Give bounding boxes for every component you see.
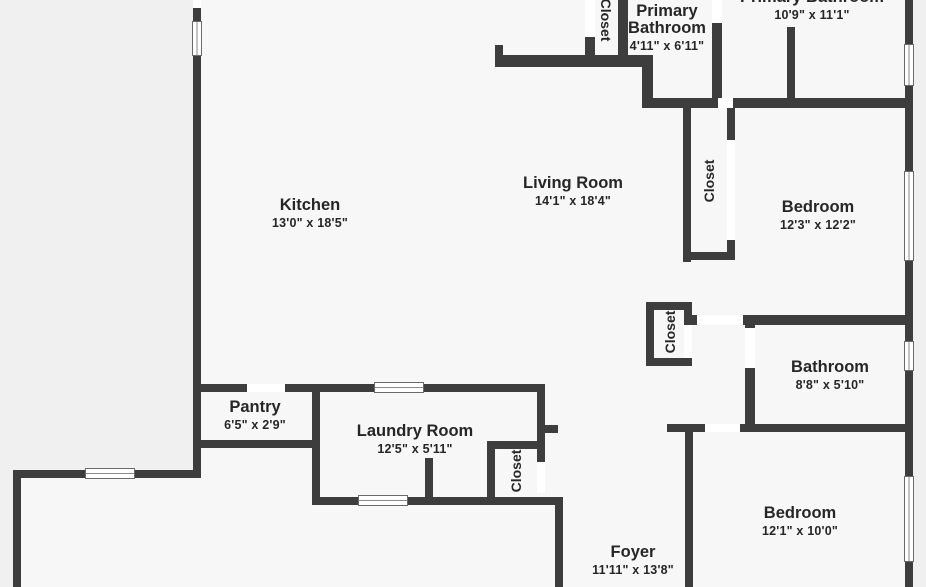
room-label-bathroom-text: Bathroom — [791, 359, 869, 376]
wall-laundry-bottom — [312, 497, 563, 505]
wall-left-upper-stub — [193, 8, 201, 22]
wall-bathroom-left-upper — [745, 315, 755, 328]
door-gap-bedroom1 — [697, 315, 743, 325]
door-gap-bedroom2 — [705, 424, 740, 432]
door-gap-bathroom — [745, 328, 755, 368]
wall-bathroom-left-lower — [745, 368, 755, 432]
window-right-bedroom1 — [904, 171, 914, 261]
wall-primary-suite-divider-1 — [712, 23, 722, 98]
wall-pantry-bottom — [193, 440, 320, 448]
room-label-primary-bathroom-small-text: Primary — [628, 3, 706, 20]
window-laundry-top — [374, 382, 424, 393]
wall-mid-closet-right-upper — [684, 302, 692, 325]
room-label-kitchen-dimensions: 13'0" x 18'5" — [272, 216, 348, 230]
room-label-living-room-text: Living Room — [523, 175, 623, 192]
wall-mid-closet-bottom — [646, 358, 692, 366]
wall-mid-closet-left — [646, 302, 654, 366]
room-label-bedroom-1: Bedroom12'3" x 12'2" — [780, 199, 856, 232]
room-label-bedroom-2: Bedroom12'1" x 10'0" — [762, 505, 838, 538]
room-label-pantry: Pantry6'5" x 2'9" — [224, 399, 286, 432]
wall-bathroom-bottom-2 — [740, 424, 913, 432]
window-left-wall — [192, 21, 202, 56]
room-label-bathroom: Bathroom8'8" x 5'10" — [791, 359, 869, 392]
wall-foyer-left — [555, 497, 563, 587]
door-gap-hall-closet — [727, 140, 735, 240]
wall-laundry-closet-left — [487, 441, 495, 505]
wall-kitchen-bottom-2 — [285, 384, 375, 392]
window-right-top — [904, 44, 914, 86]
door-gap-top-closet — [585, 0, 595, 37]
wall-upper-h-2 — [733, 98, 913, 108]
wall-bedroom2-left — [685, 432, 693, 587]
room-label-bedroom-2-dimensions: 12'1" x 10'0" — [762, 524, 838, 538]
door-gap-mid-closet — [684, 325, 692, 358]
room-label-pantry-text: Pantry — [224, 399, 286, 416]
door-gap-left-wall-top — [193, 0, 201, 8]
wall-kitchen-bottom-3 — [423, 384, 545, 392]
room-label-living-room-dimensions: 14'1" x 18'4" — [523, 194, 623, 208]
door-gap-upper-hall — [718, 98, 733, 108]
room-label-living-room: Living Room14'1" x 18'4" — [523, 175, 623, 208]
door-gap-pantry — [247, 384, 285, 392]
wall-hall-closet-right-upper — [727, 108, 735, 140]
room-label-pantry-dimensions: 6'5" x 2'9" — [224, 418, 286, 432]
wall-primary-bath-left — [642, 55, 653, 98]
wall-primary-bath-divider-h — [495, 55, 645, 67]
closet-label-top: Closet — [598, 0, 614, 41]
wall-laundry-closet-top — [487, 441, 545, 449]
room-label-primary-bathroom-small-dimensions: 4'11" x 6'11" — [628, 39, 706, 53]
wall-top-closet-right — [618, 0, 628, 57]
closet-label-laundry: Closet — [508, 450, 524, 493]
room-label-primary-bathroom-small-text: Bathroom — [628, 20, 706, 37]
wall-foyer-stub — [537, 425, 558, 433]
window-bottom-left — [85, 468, 135, 479]
room-label-laundry-room: Laundry Room12'5" x 5'11" — [357, 423, 473, 456]
room-label-kitchen-text: Kitchen — [272, 197, 348, 214]
wall-laundry-stub — [425, 458, 433, 505]
room-label-bedroom-1-dimensions: 12'3" x 12'2" — [780, 218, 856, 232]
wall-upper-h-1 — [642, 98, 718, 108]
window-laundry-bottom — [358, 495, 408, 506]
wall-hall-closet-bottom — [683, 252, 735, 260]
room-label-laundry-room-text: Laundry Room — [357, 423, 473, 440]
room-label-kitchen: Kitchen13'0" x 18'5" — [272, 197, 348, 230]
wall-hall-closet-left — [683, 108, 691, 262]
room-label-primary-bathroom-large: Primary Bathroom10'9" x 11'1" — [740, 0, 884, 22]
floor-plan: Kitchen13'0" x 18'5"Living Room14'1" x 1… — [0, 0, 926, 587]
window-right-bedroom2 — [904, 476, 914, 562]
room-label-foyer-dimensions: 11'11" x 13'8" — [592, 563, 674, 577]
room-label-primary-bathroom-large-dimensions: 10'9" x 11'1" — [740, 8, 884, 22]
room-label-bedroom-2-text: Bedroom — [762, 505, 838, 522]
wall-left-main — [193, 55, 201, 478]
closet-label-middle: Closet — [662, 311, 678, 354]
wall-exterior-far-left — [13, 470, 21, 587]
room-label-laundry-room-dimensions: 12'5" x 5'11" — [357, 442, 473, 456]
door-gap-laundry-closet — [537, 462, 545, 493]
wall-bedroom1-bottom-2 — [743, 315, 913, 325]
room-label-foyer: Foyer11'11" x 13'8" — [592, 544, 674, 577]
room-label-bathroom-dimensions: 8'8" x 5'10" — [791, 378, 869, 392]
wall-primary-bath-divider-stub — [495, 45, 503, 57]
floor-lower-left-extension — [13, 470, 201, 587]
wall-bathroom-bottom-1 — [667, 424, 705, 432]
room-label-bedroom-1-text: Bedroom — [780, 199, 856, 216]
door-gap-primary-suite-top — [712, 0, 722, 23]
wall-laundry-left — [312, 384, 320, 505]
wall-kitchen-bottom-1 — [193, 384, 247, 392]
room-label-foyer-text: Foyer — [592, 544, 674, 561]
wall-primary-suite-divider-2 — [787, 27, 795, 98]
closet-label-hall: Closet — [701, 160, 717, 203]
room-label-primary-bathroom-small: PrimaryBathroom4'11" x 6'11" — [628, 3, 706, 53]
wall-laundry-right-upper — [537, 384, 545, 462]
window-right-bathroom — [904, 341, 914, 371]
room-label-primary-bathroom-large-text: Primary Bathroom — [740, 0, 884, 6]
